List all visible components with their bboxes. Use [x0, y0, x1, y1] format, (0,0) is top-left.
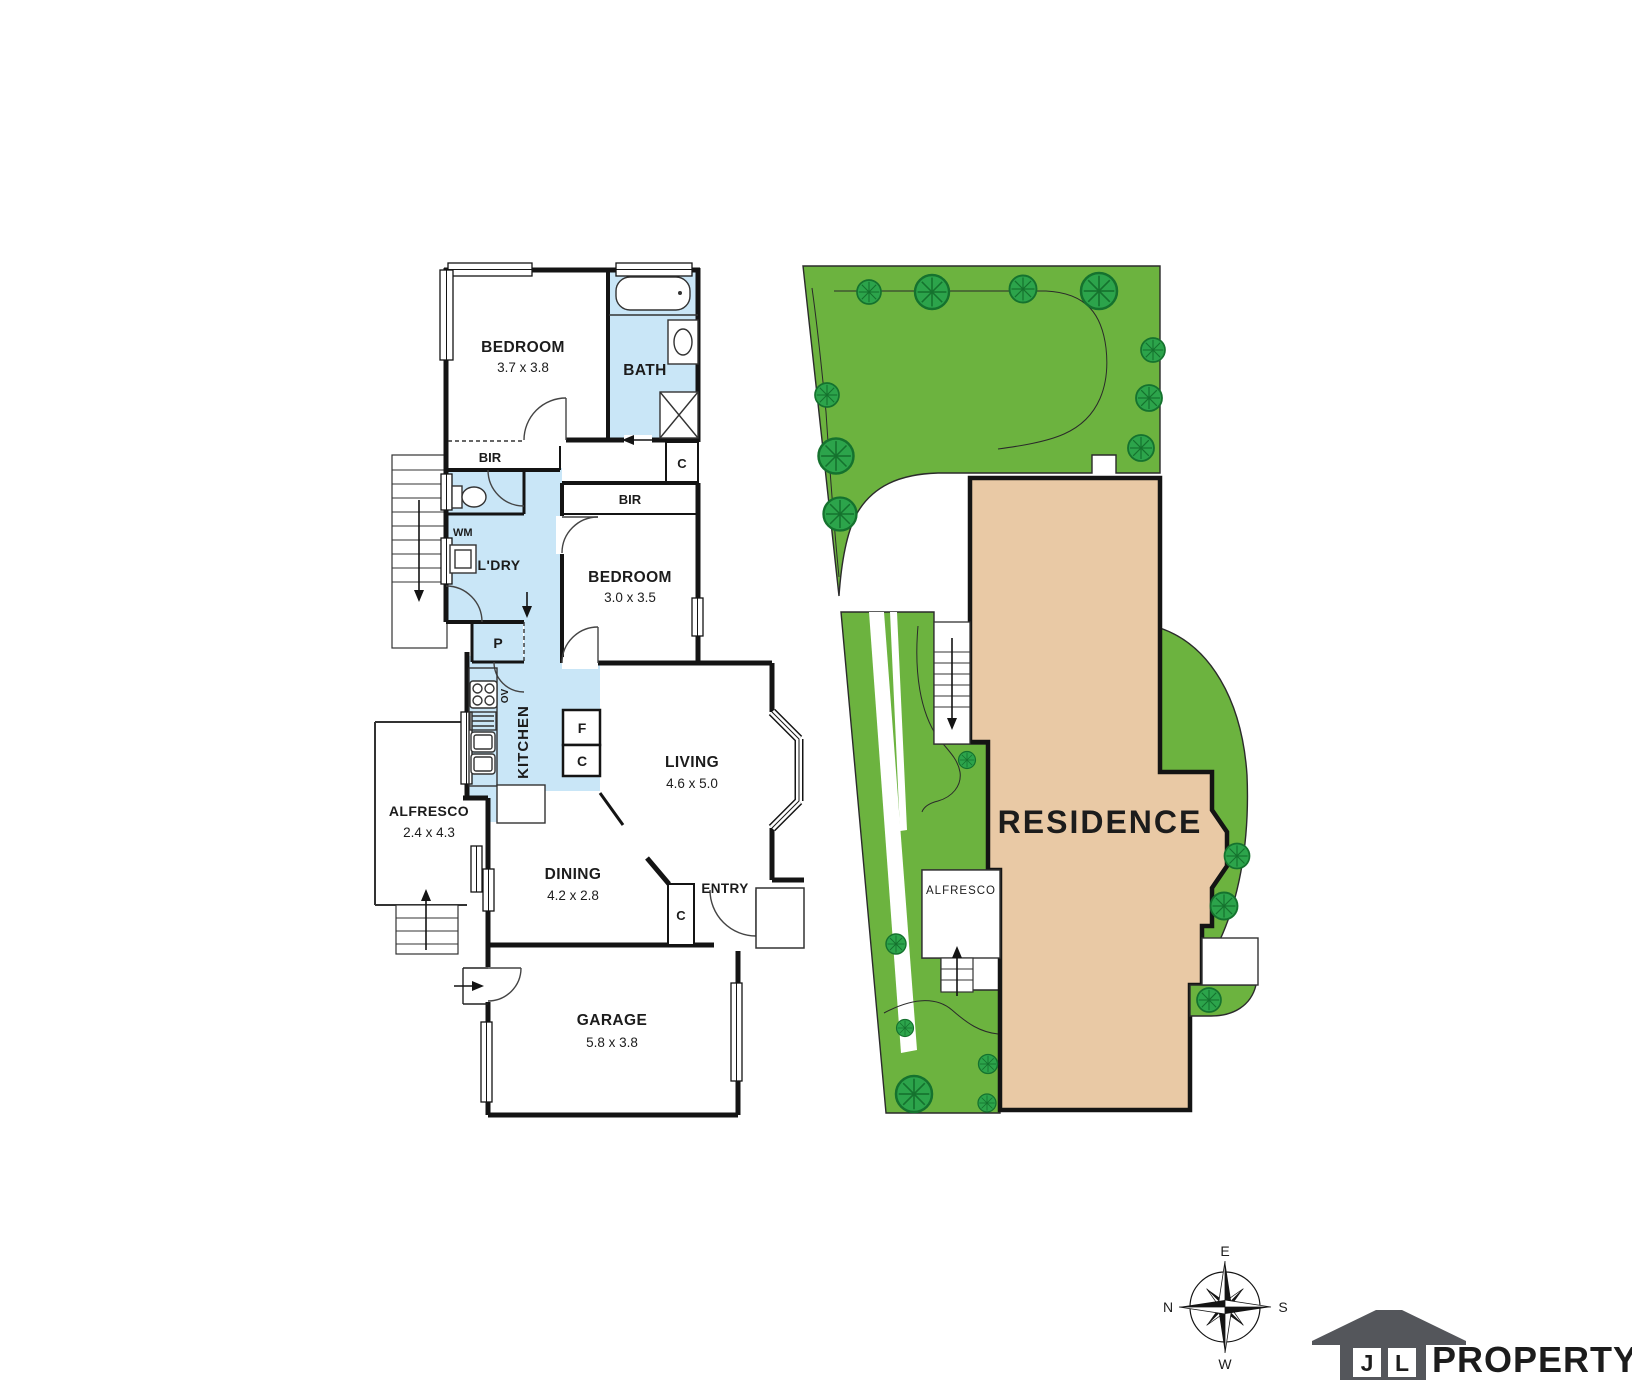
- entry-label: ENTRY: [701, 881, 748, 896]
- compass-bottom-label: W: [1218, 1356, 1232, 1372]
- fridge-label: F: [578, 720, 587, 736]
- kitchen-label: KITCHEN: [515, 705, 532, 779]
- bir-top-label: BIR: [479, 450, 502, 465]
- laundry-label: L'DRY: [478, 557, 521, 573]
- entry-closet-label: C: [676, 908, 686, 923]
- island-bench: [497, 785, 545, 823]
- bath-label: BATH: [623, 362, 667, 379]
- residence-label: RESIDENCE: [998, 804, 1203, 840]
- entry-porch: [756, 888, 804, 948]
- logo-brand-text: PROPERTY: [1432, 1339, 1632, 1380]
- site-plan: ALFRESCO: [803, 266, 1258, 1113]
- pantry-label: P: [493, 635, 502, 651]
- bedroom1-dims: 3.7 x 3.8: [497, 360, 549, 375]
- plan-canvas: ALFRESCO: [0, 0, 1632, 1392]
- living-label: LIVING: [665, 754, 719, 771]
- compass: E N S W: [1163, 1243, 1288, 1372]
- dining-label: DINING: [545, 866, 602, 883]
- compass-top-label: E: [1220, 1243, 1229, 1259]
- wm-label: WM: [453, 527, 473, 539]
- cupboard-label: C: [577, 753, 587, 769]
- alfresco-label: ALFRESCO: [389, 803, 469, 819]
- alfresco-dims: 2.4 x 4.3: [403, 825, 455, 840]
- closet-top-label: C: [677, 456, 687, 471]
- stairs-left: [392, 455, 447, 648]
- bedroom1-label: BEDROOM: [481, 339, 565, 356]
- toilet: [452, 486, 486, 508]
- residence-footprint: [970, 478, 1227, 1110]
- living-dims: 4.6 x 5.0: [666, 776, 718, 791]
- compass-right-label: S: [1278, 1299, 1287, 1315]
- site-porch: [1202, 938, 1258, 985]
- floor-plan: BEDROOM 3.7 x 3.8 BATH BIR C WM L'DRY BI…: [375, 263, 804, 1115]
- garage-label: GARAGE: [577, 1012, 647, 1029]
- logo-letter-j: J: [1361, 1350, 1374, 1376]
- washing-machine: [450, 545, 476, 573]
- dining-dims: 4.2 x 2.8: [547, 888, 599, 903]
- logo-letter-l: L: [1395, 1350, 1409, 1376]
- site-stairs-upper: [934, 622, 970, 744]
- brand-logo: J L PROPERTY: [1312, 1310, 1632, 1380]
- oven-label: OV: [500, 688, 511, 703]
- basin: [668, 320, 698, 364]
- bay-window: [772, 712, 799, 828]
- bedroom2-dims: 3.0 x 3.5: [604, 590, 656, 605]
- compass-left-label: N: [1163, 1299, 1173, 1315]
- bir-mid-label: BIR: [619, 492, 642, 507]
- garage-dims: 5.8 x 3.8: [586, 1035, 638, 1050]
- site-alfresco-label: ALFRESCO: [926, 885, 996, 897]
- bedroom2-label: BEDROOM: [588, 569, 672, 586]
- site-alfresco: ALFRESCO: [922, 870, 1000, 958]
